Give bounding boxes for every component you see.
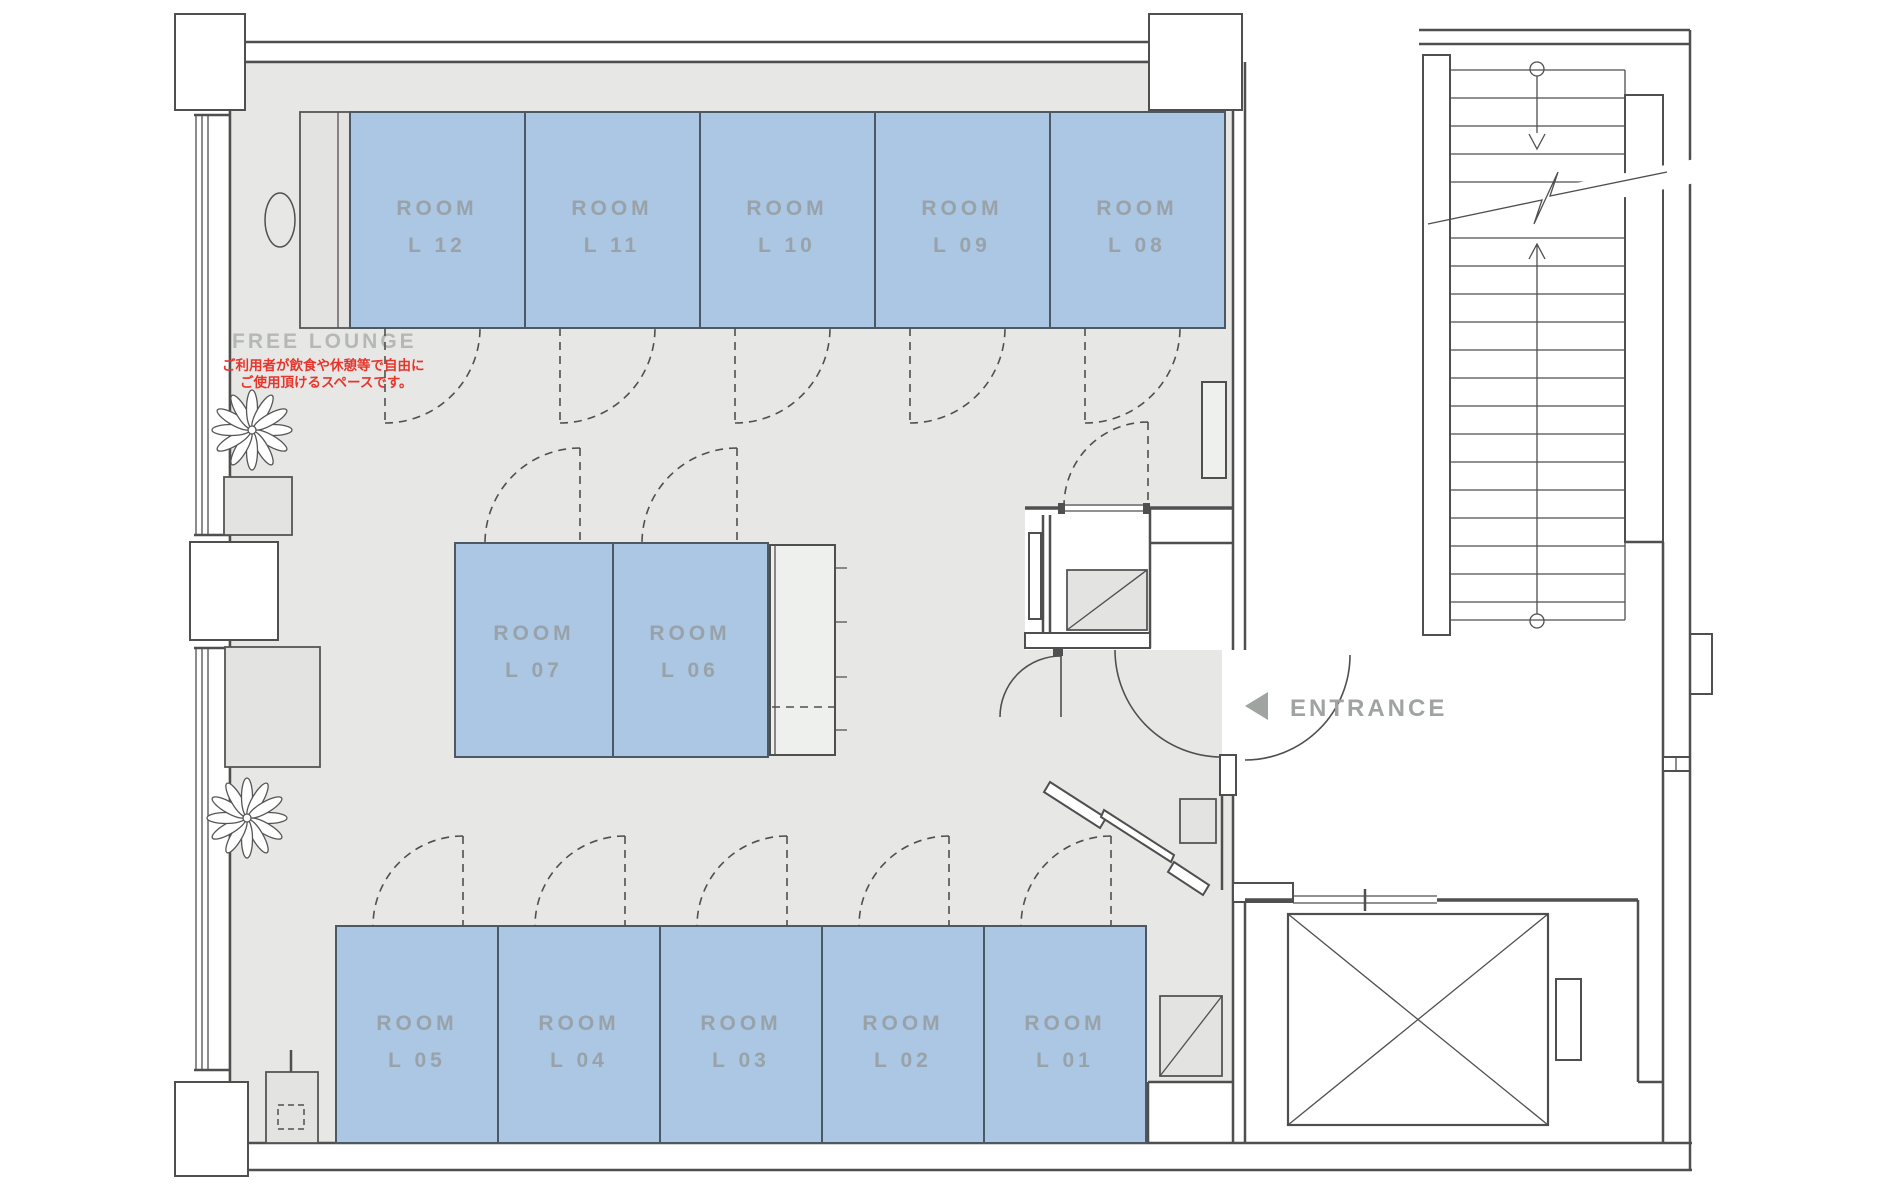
lounge-table: [224, 477, 292, 535]
room-l08-label: ROOM: [1096, 197, 1177, 220]
staircase: [1419, 30, 1695, 635]
entrance-arrow-icon: [1245, 692, 1268, 720]
floor-plan: FREE LOUNGE ご利用者が飲食や休憩等で自由に ご使用頂けるスペースです…: [0, 0, 1890, 1196]
room-l05: ROOM L 05: [336, 926, 498, 1143]
room-l02-label: ROOM: [862, 1012, 943, 1035]
room-l07: ROOM L 07: [455, 543, 613, 757]
room-l01-number: L 01: [1036, 1049, 1094, 1072]
room-l12-label: ROOM: [396, 197, 477, 220]
rooms-bottom-row: ROOM L 05 ROOM L 04 ROOM L 03 ROOM L 02 …: [336, 926, 1146, 1143]
room-l07-number: L 07: [505, 659, 563, 682]
room-l06: ROOM L 06: [613, 543, 768, 757]
elevator-car-icon: [1288, 914, 1548, 1125]
room-l11-number: L 11: [584, 234, 640, 257]
room-l05-label: ROOM: [376, 1012, 457, 1035]
room-l11: ROOM L 11: [525, 112, 700, 328]
room-l10: ROOM L 10: [700, 112, 875, 328]
free-lounge-label: FREE LOUNGE: [232, 330, 417, 353]
room-l10-label: ROOM: [746, 197, 827, 220]
room-l02: ROOM L 02: [822, 926, 984, 1143]
room-l05-number: L 05: [388, 1049, 446, 1072]
room-l09-number: L 09: [933, 234, 991, 257]
pillar-top-right: [1149, 14, 1242, 110]
room-l02-number: L 02: [874, 1049, 932, 1072]
room-l01: ROOM L 01: [984, 926, 1146, 1143]
room-l08-number: L 08: [1108, 234, 1166, 257]
stair-handrail: [1423, 55, 1450, 635]
room-l09-label: ROOM: [921, 197, 1002, 220]
room-l03: ROOM L 03: [660, 926, 822, 1143]
room-l04: ROOM L 04: [498, 926, 660, 1143]
entry-cabinet: [1180, 799, 1216, 843]
storage-shelf: [770, 545, 847, 755]
room-l12-number: L 12: [408, 234, 466, 257]
room-l06-number: L 06: [661, 659, 719, 682]
room-l04-number: L 04: [550, 1049, 608, 1072]
stair-direction-icon: [1529, 62, 1545, 628]
utility-closet: [1067, 570, 1147, 630]
wall-fixture: [1202, 382, 1226, 478]
pillar-bottom-left: [175, 1082, 248, 1176]
room-l03-label: ROOM: [700, 1012, 781, 1035]
free-lounge-note-line2: ご使用頂けるスペースです。: [240, 374, 413, 390]
entrance-label: ENTRANCE: [1290, 695, 1447, 722]
lounge-sofa: [225, 647, 320, 767]
room-l11-label: ROOM: [571, 197, 652, 220]
room-l07-label: ROOM: [493, 622, 574, 645]
room-l09: ROOM L 09: [875, 112, 1050, 328]
room-l01-label: ROOM: [1024, 1012, 1105, 1035]
room-l04-label: ROOM: [538, 1012, 619, 1035]
rooms-middle-row: ROOM L 07 ROOM L 06: [455, 543, 847, 757]
exterior-stub: [1690, 634, 1712, 694]
pillar-mid-left: [190, 542, 278, 640]
room-l06-label: ROOM: [649, 622, 730, 645]
elevator-panel: [1556, 979, 1581, 1060]
pillar-top-left: [175, 14, 245, 110]
room-l08: ROOM L 08: [1050, 112, 1225, 328]
rooms-top-row: ROOM L 12 ROOM L 11 ROOM L 10 ROOM L 09 …: [350, 112, 1225, 328]
room-l12: ROOM L 12: [350, 112, 525, 328]
free-lounge-note-line1: ご利用者が飲食や休憩等で自由に: [222, 357, 425, 373]
lounge-closet: [300, 112, 350, 328]
wall-window: [1663, 757, 1690, 771]
room-l03-number: L 03: [712, 1049, 770, 1072]
entry-door-leaf: [1220, 755, 1236, 795]
shoe-box: [1160, 996, 1222, 1076]
room-l10-number: L 10: [758, 234, 816, 257]
